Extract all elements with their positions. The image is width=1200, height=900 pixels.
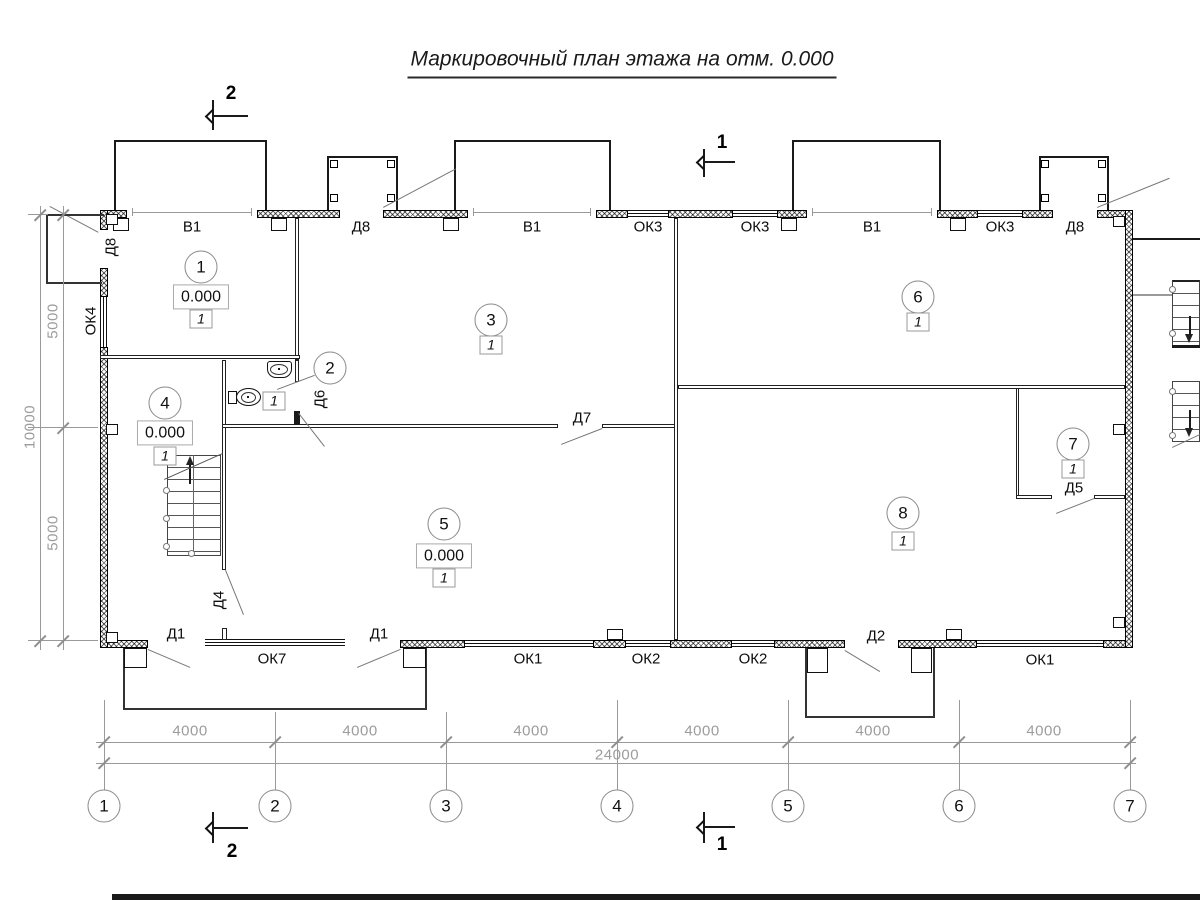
handrail-post — [1169, 388, 1176, 395]
dimension-label: 4000 — [855, 724, 890, 739]
window-ok3 — [733, 210, 777, 217]
elevation-box: 0.000 — [416, 543, 472, 568]
dimension-label: 4000 — [172, 724, 207, 739]
extension-line — [104, 700, 105, 790]
vent-shaft-outline — [609, 140, 611, 210]
extension-line — [275, 712, 276, 790]
handrail-post — [163, 487, 170, 494]
sink-drain — [278, 368, 280, 370]
window-ok4 — [100, 297, 107, 347]
room-type-box: 1 — [480, 336, 503, 355]
vestibule-post — [330, 160, 338, 168]
porch-outline — [123, 708, 427, 710]
wall-segment — [257, 210, 340, 218]
interior-wall — [1094, 495, 1125, 499]
handrail-post — [188, 550, 195, 557]
porch-outline — [46, 282, 102, 284]
opening-label: ОК3 — [741, 220, 770, 235]
interior-wall — [222, 360, 226, 570]
dimension-label: 5000 — [46, 303, 61, 338]
room-number-circle: 3 — [475, 304, 508, 337]
room-type-box: 1 — [1062, 460, 1085, 479]
vent-shaft-outline — [454, 140, 456, 210]
door-swing — [844, 650, 880, 672]
interior-wall — [100, 355, 300, 359]
arrow-down-icon — [1185, 428, 1193, 437]
window-ok3 — [978, 210, 1022, 217]
vestibule-post — [1098, 194, 1106, 202]
wall-segment — [670, 640, 732, 648]
door-swing — [148, 649, 191, 668]
vestibule-post — [1041, 160, 1049, 168]
door-swing — [1056, 498, 1095, 514]
extension-line — [1130, 700, 1131, 790]
opening-label: Д7 — [573, 411, 592, 426]
exterior-landing-line — [1133, 294, 1173, 296]
vestibule-outline — [1039, 156, 1109, 158]
opening-label: Д8 — [352, 220, 371, 235]
section-mark-label: 1 — [717, 132, 728, 154]
vent-tick — [812, 208, 813, 216]
room-number-circle: 5 — [428, 508, 461, 541]
wall-segment — [777, 210, 807, 218]
wall-pier — [106, 214, 118, 225]
section-mark-label: 2 — [226, 83, 237, 105]
wall-segment — [774, 640, 845, 648]
opening-label: Д4 — [212, 591, 227, 610]
arrow-down-icon — [1185, 334, 1193, 343]
porch-pier — [403, 648, 426, 668]
extension-line — [788, 700, 789, 790]
wall-segment — [937, 210, 978, 218]
dimension-label: 5000 — [46, 515, 61, 550]
door-swing — [357, 649, 401, 668]
window-ok7 — [205, 639, 345, 646]
vent-line — [473, 212, 591, 213]
wall-segment — [383, 210, 468, 218]
section-arrow-icon — [205, 821, 221, 837]
wall-segment — [593, 640, 626, 648]
interior-wall — [1016, 495, 1052, 499]
interior-wall — [674, 218, 678, 640]
room-type-box: 1 — [433, 569, 456, 588]
opening-label: Д8 — [104, 238, 119, 257]
window-ok2 — [626, 640, 670, 647]
axis-bubble: 3 — [430, 790, 463, 823]
extension-line — [617, 700, 618, 790]
vestibule-outline — [327, 156, 398, 158]
extension-line — [446, 712, 447, 790]
wall-segment — [668, 210, 733, 218]
opening-label: В1 — [523, 220, 541, 235]
room-type-box: 1 — [154, 447, 177, 466]
section-mark-label: 1 — [717, 834, 728, 856]
dimension-total-label: 24000 — [595, 748, 639, 763]
vent-shaft-outline — [792, 140, 794, 210]
interior-wall — [602, 424, 676, 428]
room-number-circle: 7 — [1057, 428, 1090, 461]
extension-line — [959, 700, 960, 790]
window-ok3 — [628, 210, 668, 217]
stairs — [167, 455, 221, 556]
wall-segment — [1022, 210, 1053, 218]
opening-label: ОК1 — [514, 652, 543, 667]
vent-shaft-outline — [114, 140, 267, 142]
toilet-drain — [247, 396, 249, 398]
interior-wall — [678, 385, 1125, 389]
section-arrow-icon — [696, 820, 712, 836]
porch-pier — [911, 648, 932, 673]
room-type-box: 1 — [907, 313, 930, 332]
stair-direction-line — [1189, 316, 1191, 334]
room-type-box: 1 — [263, 392, 286, 411]
interior-wall — [222, 424, 558, 428]
porch-outline — [46, 214, 48, 284]
wall-segment — [596, 210, 628, 218]
dimension-label: 4000 — [513, 724, 548, 739]
porch-outline — [46, 214, 104, 216]
wall-pier — [1113, 216, 1125, 227]
vent-shaft-outline — [265, 140, 267, 210]
vestibule-outline — [396, 156, 398, 210]
opening-label: Д2 — [867, 629, 886, 644]
dimension-total-label: 10000 — [23, 405, 38, 449]
vestibule-outline — [327, 156, 329, 210]
vent-shaft-outline — [792, 140, 941, 142]
dimension-label: 4000 — [684, 724, 719, 739]
page-title: Маркировочный план этажа на отм. 0.000 — [408, 48, 837, 79]
axis-bubble: 6 — [943, 790, 976, 823]
handrail-post — [1169, 432, 1176, 439]
porch-pier — [124, 648, 147, 668]
vent-line — [812, 212, 932, 213]
window-ok2 — [732, 640, 774, 647]
elevation-box: 0.000 — [137, 420, 193, 445]
dimension-line — [40, 206, 41, 650]
exterior-landing-line — [1133, 238, 1200, 240]
vent-shaft-outline — [114, 140, 116, 210]
porch-outline — [933, 648, 935, 718]
section-arrow-icon — [696, 155, 712, 171]
handrail-post — [1169, 330, 1176, 337]
wall-segment — [1125, 210, 1133, 648]
axis-bubble: 2 — [259, 790, 292, 823]
wall-pier — [950, 218, 966, 231]
opening-label: Д1 — [167, 627, 186, 642]
room-number-circle: 6 — [902, 281, 935, 314]
vent-shaft-outline — [454, 140, 611, 142]
vent-tick — [251, 208, 252, 216]
elevation-box: 0.000 — [173, 284, 229, 309]
porch-pier — [807, 648, 828, 673]
wall-pier — [106, 632, 118, 643]
wall-pier — [1113, 424, 1125, 435]
vent-shaft-outline — [939, 140, 941, 210]
section-mark-label: 2 — [227, 841, 238, 863]
vestibule-post — [330, 194, 338, 202]
axis-bubble: 7 — [1114, 790, 1147, 823]
handrail-post — [163, 515, 170, 522]
opening-label: Д8 — [1066, 220, 1085, 235]
axis-bubble: 4 — [601, 790, 634, 823]
wall-pier — [106, 424, 118, 435]
vent-tick — [590, 208, 591, 216]
wall-pier — [781, 218, 797, 231]
room-number-circle: 4 — [149, 387, 182, 420]
window-ok1 — [465, 640, 593, 647]
vestibule-post — [387, 160, 395, 168]
wall-segment — [898, 640, 977, 648]
arrow-up-icon — [186, 456, 194, 465]
opening-label: Д6 — [313, 390, 328, 409]
wall-pier — [271, 218, 287, 231]
axis-bubble: 5 — [772, 790, 805, 823]
vent-tick — [931, 208, 932, 216]
axis-bubble: 1 — [88, 790, 121, 823]
stair-landing-edge — [1172, 345, 1200, 348]
opening-label: ОК7 — [258, 652, 287, 667]
window-ok1 — [977, 640, 1103, 647]
interior-wall — [1016, 388, 1019, 497]
opening-label: ОК3 — [986, 220, 1015, 235]
door-swing — [225, 570, 244, 615]
wall-pier — [607, 629, 623, 640]
door-post — [222, 628, 227, 640]
room-type-box: 1 — [892, 532, 915, 551]
interior-wall — [295, 218, 299, 360]
vestibule-post — [1041, 194, 1049, 202]
wall-pier — [946, 629, 962, 640]
dimension-label: 4000 — [342, 724, 377, 739]
door-swing — [298, 413, 325, 447]
handrail-post — [163, 543, 170, 550]
door-swing — [383, 169, 456, 208]
room-type-box: 1 — [190, 310, 213, 329]
opening-label: ОК1 — [1026, 653, 1055, 668]
wall-segment — [100, 347, 108, 648]
vent-tick — [132, 208, 133, 216]
opening-label: В1 — [863, 220, 881, 235]
vestibule-post — [1098, 160, 1106, 168]
wall-pier — [1113, 617, 1125, 628]
drawing-frame-edge — [112, 894, 1200, 900]
wall-segment — [400, 640, 465, 648]
vent-tick — [473, 208, 474, 216]
room-number-circle: 1 — [185, 251, 218, 284]
vent-line — [132, 212, 252, 213]
room-number-circle: 2 — [314, 352, 347, 385]
floor-plan-drawing: Маркировочный план этажа на отм. 0.000 — [0, 0, 1200, 900]
wall-pier — [443, 218, 459, 231]
interior-wall — [295, 360, 299, 382]
opening-label: ОК2 — [632, 652, 661, 667]
opening-label: ОК2 — [739, 652, 768, 667]
opening-label: В1 — [183, 220, 201, 235]
opening-label: ОК4 — [84, 307, 99, 336]
opening-label: ОК3 — [634, 220, 663, 235]
porch-outline — [805, 716, 935, 718]
stair-stringer — [193, 455, 194, 556]
opening-label: Д1 — [370, 627, 389, 642]
opening-label: Д5 — [1065, 481, 1084, 496]
door-swing — [561, 428, 602, 445]
stair-direction-line — [1189, 410, 1191, 428]
room-number-circle: 8 — [887, 497, 920, 530]
section-arrow-icon — [205, 109, 221, 125]
dimension-label: 4000 — [1026, 724, 1061, 739]
handrail-post — [1169, 286, 1176, 293]
